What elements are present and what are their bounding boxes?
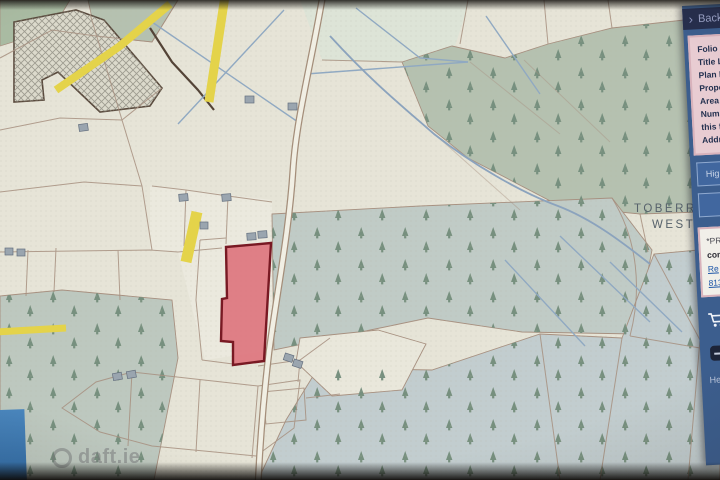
print-icon: [714, 352, 720, 354]
highlight-button[interactable]: Hig: [696, 158, 720, 187]
back-button-label: Back: [698, 11, 720, 24]
back-button[interactable]: › Back: [682, 4, 720, 30]
shopping-cart-icon: [707, 312, 720, 329]
land-registry-map-screen: TOBERROE WEST daft.ie › Back Folio N Tit…: [0, 0, 720, 480]
print-button[interactable]: [710, 345, 720, 361]
folio-details-card: Folio N Title Le Plan N Prope Area ( Num…: [688, 31, 720, 156]
cart-button[interactable]: [707, 309, 720, 335]
secondary-button[interactable]: [698, 189, 720, 218]
highlight-button-label: Hig: [706, 168, 720, 179]
prai-note-text: *PR: [706, 230, 720, 248]
chevron-right-icon: ›: [688, 12, 693, 25]
map-canvas[interactable]: TOBERROE WEST: [0, 0, 720, 480]
svg-text:WEST: WEST: [652, 219, 695, 231]
help-link[interactable]: He: [709, 370, 720, 385]
purchase-links-card: *PR con Re 813: [698, 223, 720, 298]
folio-number-label: Folio N: [697, 39, 720, 56]
blue-corner-overlay: [0, 409, 27, 480]
